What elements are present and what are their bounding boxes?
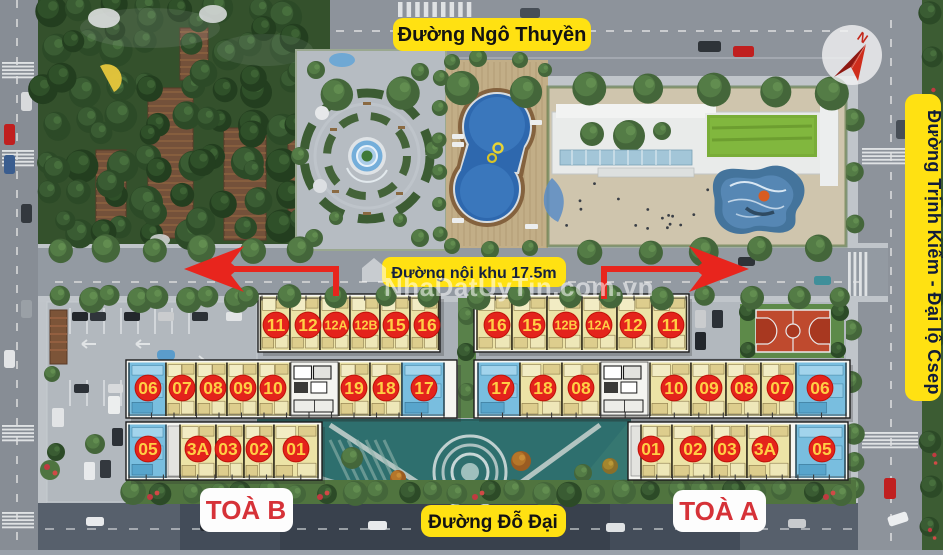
svg-text:05: 05	[138, 439, 158, 459]
svg-text:Đường Đỗ Đại: Đường Đỗ Đại	[428, 511, 558, 533]
svg-text:3A: 3A	[187, 439, 210, 459]
svg-text:08: 08	[734, 378, 754, 398]
svg-text:16: 16	[417, 315, 437, 335]
svg-text:10: 10	[664, 378, 684, 398]
svg-text:16: 16	[487, 315, 507, 335]
svg-text:15: 15	[522, 315, 542, 335]
svg-text:01: 01	[641, 439, 661, 459]
svg-text:15: 15	[386, 315, 406, 335]
svg-text:03: 03	[717, 439, 737, 459]
svg-text:18: 18	[376, 378, 396, 398]
svg-text:02: 02	[683, 439, 703, 459]
svg-text:TOÀ A: TOÀ A	[679, 496, 759, 526]
svg-text:17: 17	[414, 378, 433, 398]
svg-text:12A: 12A	[324, 319, 347, 333]
svg-text:18: 18	[533, 378, 553, 398]
svg-text:12A: 12A	[587, 319, 610, 333]
svg-text:Đường Trịnh Kiểm - Đại lộ Csep: Đường Trịnh Kiểm - Đại lộ Csep	[924, 110, 943, 395]
svg-text:08: 08	[571, 378, 591, 398]
svg-text:09: 09	[699, 378, 719, 398]
svg-text:12: 12	[623, 315, 643, 335]
svg-text:17: 17	[491, 378, 510, 398]
svg-text:06: 06	[810, 378, 830, 398]
svg-text:07: 07	[770, 378, 789, 398]
svg-text:01: 01	[286, 439, 306, 459]
svg-text:11: 11	[267, 315, 286, 335]
svg-text:Đường Ngô Thuyền: Đường Ngô Thuyền	[398, 24, 587, 46]
svg-text:12B: 12B	[354, 319, 377, 333]
svg-text:07: 07	[172, 378, 191, 398]
svg-text:3A: 3A	[754, 439, 777, 459]
svg-text:09: 09	[233, 378, 253, 398]
svg-text:06: 06	[138, 378, 158, 398]
svg-text:11: 11	[662, 315, 681, 335]
svg-text:05: 05	[812, 439, 832, 459]
svg-text:03: 03	[218, 439, 238, 459]
svg-text:19: 19	[344, 378, 364, 398]
svg-text:10: 10	[263, 378, 283, 398]
svg-text:NhaDatUyTin.com.vn: NhaDatUyTin.com.vn	[384, 272, 654, 302]
svg-text:08: 08	[203, 378, 223, 398]
svg-text:02: 02	[249, 439, 269, 459]
svg-text:12: 12	[298, 315, 318, 335]
svg-text:TOÀ B: TOÀ B	[206, 495, 286, 525]
svg-text:12B: 12B	[554, 319, 577, 333]
